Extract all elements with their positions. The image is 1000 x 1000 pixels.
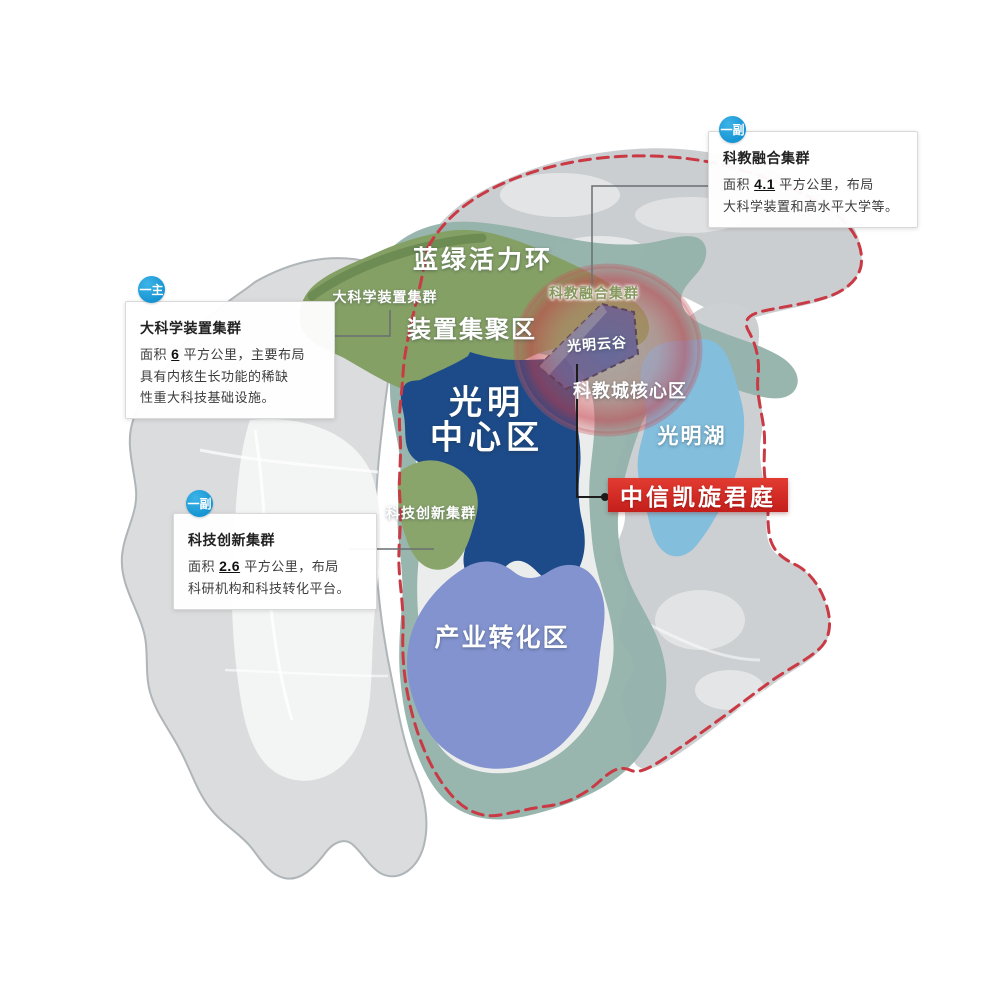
callout-sci-edu-body: 面积 4.1 平方公里，布局大科学装置和高水平大学等。: [723, 173, 905, 217]
callout-tech-innovation-cluster: 科技创新集群 面积 2.6 平方公里，布局科研机构和科技转化平台。: [173, 513, 377, 610]
label-big-science-cluster: 大科学装置集群: [333, 287, 438, 307]
label-tech-innovation: 科技创新集群: [386, 503, 476, 523]
label-sci-edu-core: 科教城核心区: [573, 377, 687, 403]
callout-big-science-body: 面积 6 平方公里，主要布局具有内核生长功能的稀缺性重大科技基础设施。: [140, 343, 322, 408]
label-blue-green-ring: 蓝绿活力环: [413, 240, 553, 276]
callout-sci-edu-title: 科教融合集群: [723, 148, 905, 168]
callout-sci-edu-cluster: 科教融合集群 面积 4.1 平方公里，布局大科学装置和高水平大学等。: [708, 131, 918, 228]
callout-big-science-cluster: 大科学装置集群 面积 6 平方公里，主要布局具有内核生长功能的稀缺性重大科技基础…: [125, 301, 335, 419]
badge-yifu-2: 一副: [186, 490, 213, 517]
planning-map-stage: 蓝绿活力环 大科学装置集群 装置集聚区 科教融合集群 光明云谷 科教城核心区 光…: [0, 0, 1000, 1000]
badge-yifu-1: 一副: [719, 116, 746, 143]
label-guangming-lake: 光明湖: [658, 420, 727, 450]
label-guangming-center-line1: 光明: [430, 385, 544, 420]
label-guangming-center-line2: 中心区: [430, 420, 544, 455]
label-cloud-valley: 光明云谷: [566, 332, 627, 356]
property-badge: 中信凯旋君庭: [608, 478, 788, 512]
label-guangming-center: 光明 中心区: [430, 385, 544, 454]
label-industry-zone: 产业转化区: [434, 618, 569, 654]
badge-yizhu: 一主: [138, 276, 165, 303]
label-device-zone: 装置集聚区: [407, 310, 537, 345]
callout-big-science-title: 大科学装置集群: [140, 318, 322, 338]
callout-tech-innovation-title: 科技创新集群: [188, 530, 364, 550]
callout-tech-innovation-body: 面积 2.6 平方公里，布局科研机构和科技转化平台。: [188, 555, 364, 599]
label-sci-edu-cluster: 科教融合集群: [549, 283, 639, 303]
